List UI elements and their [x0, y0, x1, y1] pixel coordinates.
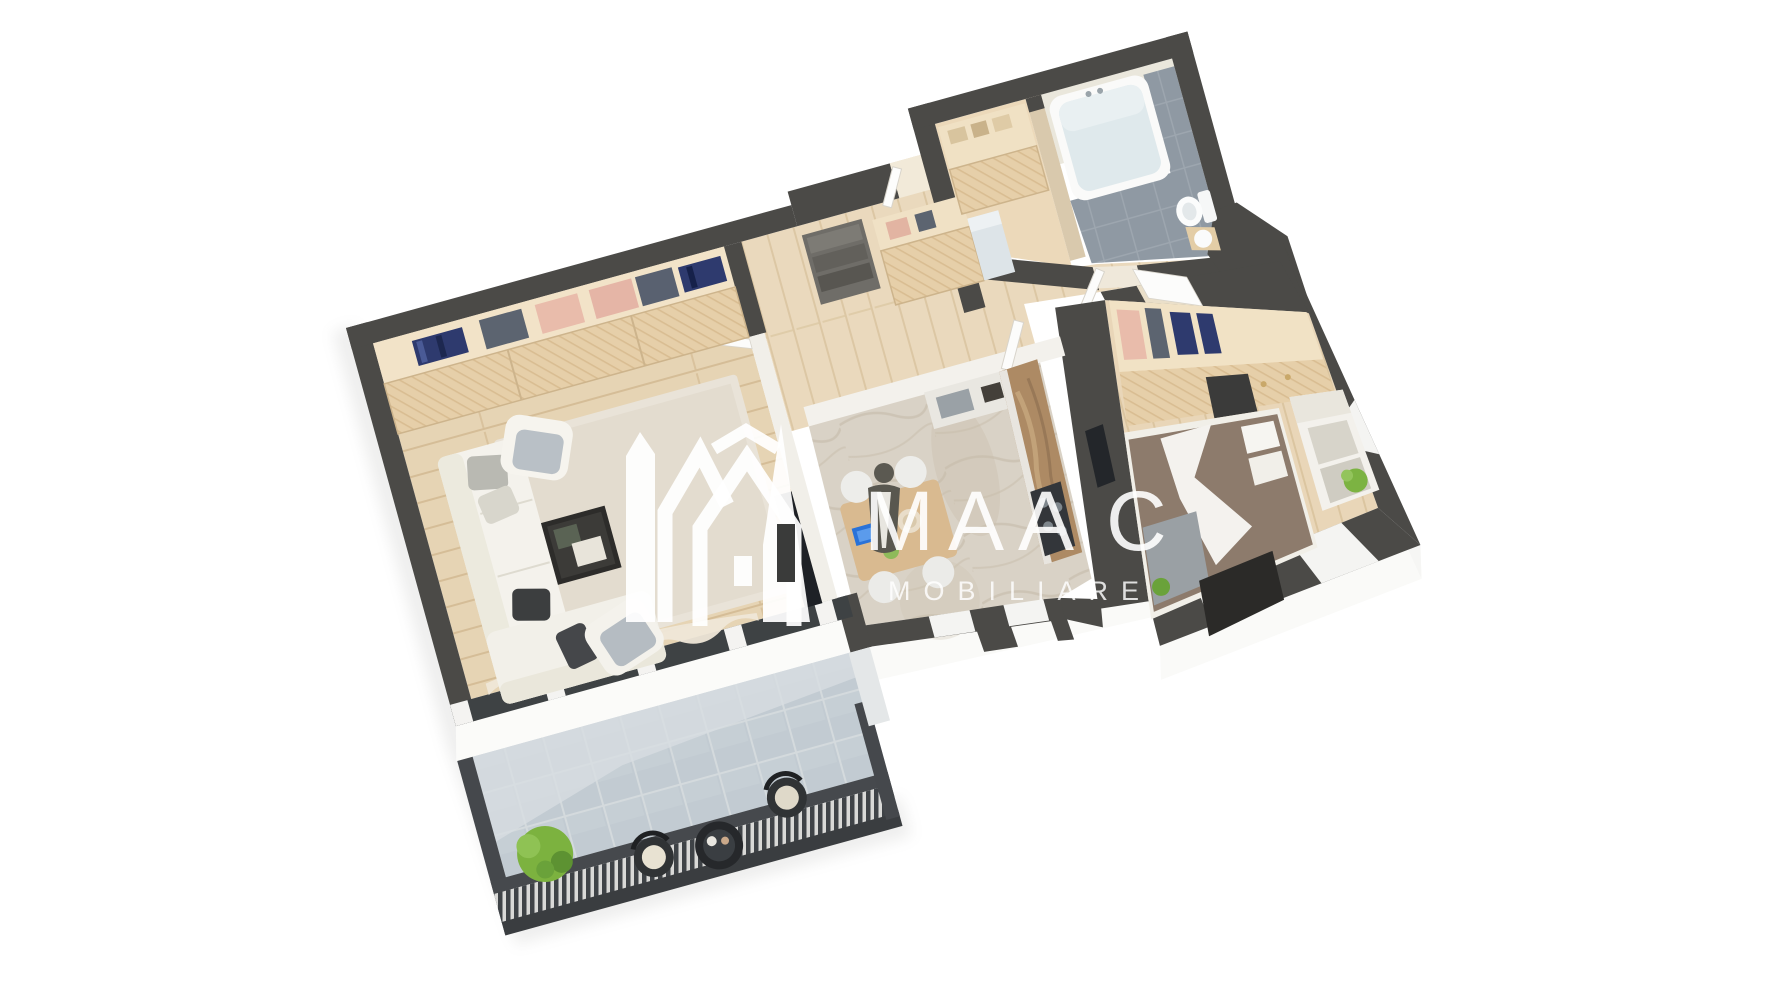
- svg-text:A: A: [1018, 474, 1074, 568]
- svg-text:M: M: [864, 474, 934, 568]
- svg-text:MOBILIARE: MOBILIARE: [888, 576, 1152, 606]
- svg-text:A: A: [948, 474, 1004, 568]
- svg-text:C: C: [1106, 474, 1167, 568]
